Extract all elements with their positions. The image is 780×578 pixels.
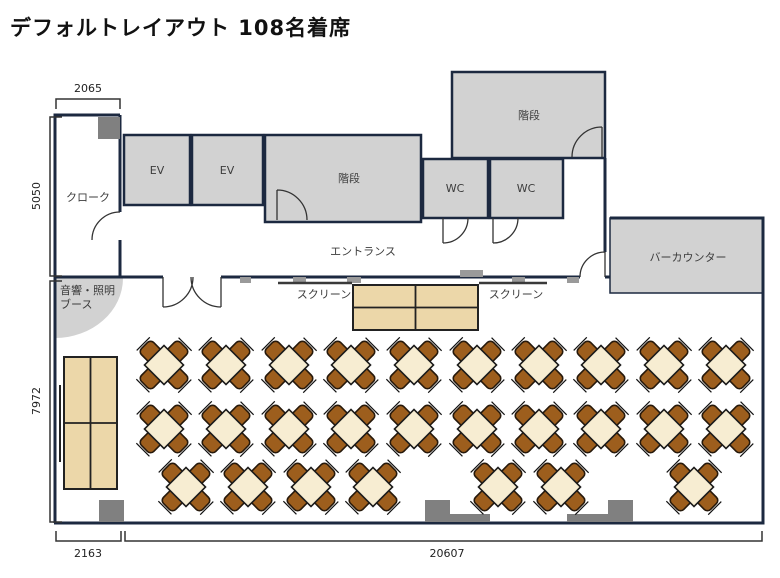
table-group — [684, 323, 768, 407]
wall-fixture — [567, 277, 579, 283]
table-group — [269, 445, 353, 529]
cloak-label: クローク — [66, 191, 110, 204]
hall-double-door-left — [163, 277, 193, 307]
table-group — [247, 323, 331, 407]
dim-bracket-bottom-left — [56, 531, 121, 541]
dim-bottom-left-width: 2163 — [74, 547, 102, 560]
screen-right-label: スクリーン — [489, 288, 543, 301]
stage-table — [353, 285, 478, 330]
dim-hall-width: 20607 — [430, 547, 465, 560]
pillar — [99, 500, 124, 522]
table-group — [122, 387, 206, 471]
table-group — [622, 323, 706, 407]
dim-bracket-cloak-width — [56, 99, 120, 109]
dim-hall-height: 7972 — [30, 387, 43, 415]
table-group — [559, 323, 643, 407]
table-group — [559, 387, 643, 471]
floor-plan: クローク EV EV 階段 WC WC 階段 エントランス バーカウンター 音響… — [0, 0, 780, 578]
stairs-upper-label: 階段 — [518, 108, 540, 122]
table-group — [497, 387, 581, 471]
table-group — [309, 387, 393, 471]
ev1-label: EV — [150, 164, 165, 177]
wall-fixture — [460, 270, 483, 277]
wc1-label: WC — [446, 182, 465, 195]
dim-upper-height: 5050 — [30, 182, 43, 210]
booth-label-line2: ブース — [60, 297, 92, 311]
wc2-label: WC — [517, 182, 536, 195]
table-group — [122, 323, 206, 407]
bar-counter-label: バーカウンター — [650, 251, 727, 264]
table-group — [652, 445, 736, 529]
dim-cloak-width: 2065 — [74, 82, 102, 95]
wc2-door — [493, 218, 518, 243]
table-group — [247, 387, 331, 471]
booth-label-line1: 音響・照明 — [60, 283, 115, 297]
table-group — [309, 323, 393, 407]
table-group — [684, 387, 768, 471]
table-group — [435, 323, 519, 407]
table-group — [331, 445, 415, 529]
floor-plan-page: デフォルトレイアウト 108名着席 — [0, 0, 780, 578]
wc1-door — [443, 218, 468, 243]
table-group — [622, 387, 706, 471]
table-group — [372, 387, 456, 471]
table-group — [435, 387, 519, 471]
table-group — [184, 387, 268, 471]
head-table — [60, 357, 117, 489]
cloak-door — [92, 212, 120, 240]
seating-layer — [122, 323, 768, 529]
stairs-main-label: 階段 — [338, 171, 360, 185]
table-group — [184, 323, 268, 407]
table-group — [206, 445, 290, 529]
table-group — [144, 445, 228, 529]
dim-bracket-hall-width — [125, 531, 762, 541]
hall-double-door-right — [191, 277, 221, 307]
table-group — [497, 323, 581, 407]
entrance-label: エントランス — [330, 245, 396, 258]
pillar — [98, 117, 120, 139]
table-group — [372, 323, 456, 407]
wall-fixture — [240, 277, 251, 283]
ev2-label: EV — [220, 164, 235, 177]
bar-side-door — [580, 252, 605, 277]
screen-left-label: スクリーン — [297, 288, 351, 301]
